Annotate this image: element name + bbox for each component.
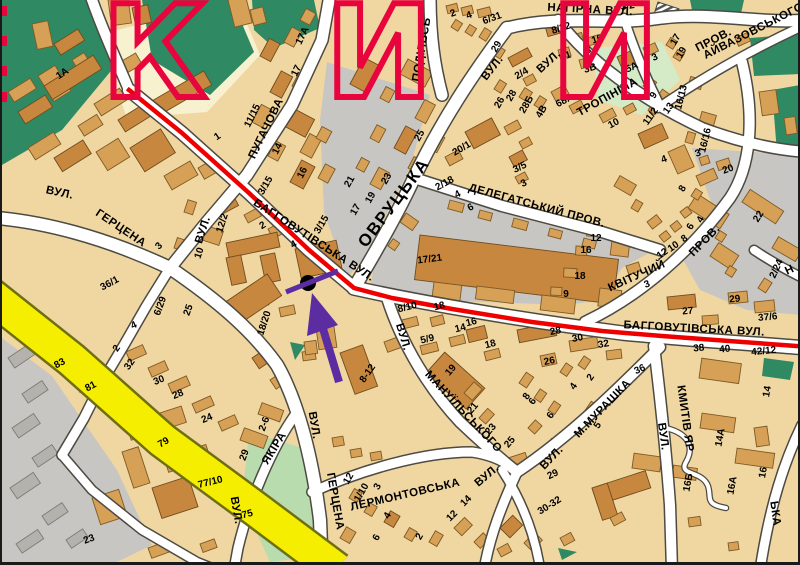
house-number-label: 37/6 — [758, 311, 779, 324]
watermark-letter: И — [551, 0, 658, 128]
watermark-letter: К — [102, 0, 207, 128]
house-number-label: 27 — [682, 306, 694, 318]
watermark-letter: И — [325, 0, 432, 128]
house-number-label: 12 — [590, 233, 602, 244]
house-number-label: 40 — [719, 344, 731, 356]
house-number-label: 9 — [563, 289, 569, 300]
house-number-label: 38 — [693, 343, 705, 355]
house-number-label: 29 — [729, 294, 741, 306]
house-number-label: 42/12 — [751, 345, 777, 358]
map-canvas[interactable]: ВУЛ.ГЕРЦЕНАВУЛ.ПУГАЧОВАБАГГОВУТІВСЬКА ВУ… — [0, 0, 800, 565]
house-number-label: 16 — [580, 245, 592, 256]
city-watermark: КИИ — [102, 0, 659, 128]
house-number-label: 18 — [574, 271, 586, 282]
